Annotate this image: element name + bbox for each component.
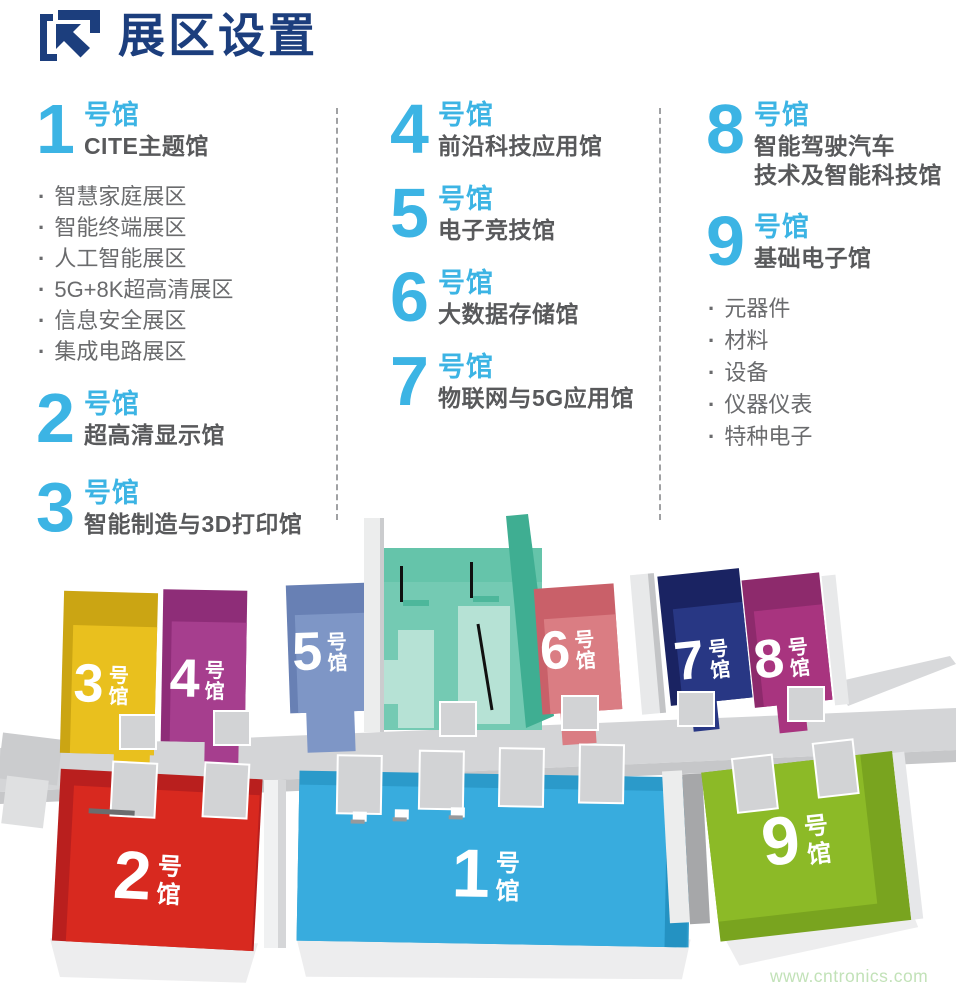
hall-name: 电子竞技馆 [438, 216, 556, 245]
floor-map-svg: 3 号 馆 4 号 馆 5 号 馆 [0, 512, 956, 994]
vestibule [788, 687, 824, 721]
partition-shelf [473, 596, 499, 602]
hall-entry-8: 8 号馆 智能驾驶汽车 技术及智能科技馆 [706, 102, 951, 190]
hall-entry-7: 7 号馆 物联网与5G应用馆 [390, 354, 655, 413]
list-item: 元器件 [708, 293, 951, 325]
vestibule [203, 762, 250, 818]
vestibule [813, 739, 859, 797]
vestibule [110, 762, 157, 818]
hall-suffix: 号馆 [438, 270, 579, 297]
vestibule [678, 692, 714, 726]
hall-number: 8 [706, 102, 743, 157]
hall-entry-1: 1 号馆 CITE主题馆 [36, 102, 331, 161]
list-item: 智能终端展区 [38, 212, 331, 243]
hall-number: 5 [390, 186, 427, 241]
map-hall-1: 1 号 馆 [296, 740, 694, 984]
divider-wall [264, 780, 286, 948]
partition-mark [470, 562, 473, 598]
vestibule [732, 755, 778, 813]
hall-number: 4 [390, 102, 427, 157]
hall-suffix: 号馆 [438, 102, 603, 129]
map-hall-5: 5 号 馆 [286, 583, 374, 754]
hall-suffix: 号馆 [84, 480, 302, 507]
hall-entry-6: 6 号馆 大数据存储馆 [390, 270, 655, 329]
map-hall-2: 2 号 馆 [48, 755, 267, 988]
vestibule [562, 696, 598, 730]
hall-name: 前沿科技应用馆 [438, 132, 603, 161]
column-3: 8 号馆 智能驾驶汽车 技术及智能科技馆 9 号馆 基础电子馆 元器件 材料 设… [706, 102, 951, 453]
list-item: 集成电路展区 [38, 336, 331, 367]
watermark: www.cntronics.com [770, 966, 928, 987]
hall-suffix: 号馆 [84, 102, 209, 129]
central-hall [364, 514, 554, 732]
hall-number: 1 [36, 102, 73, 157]
list-item: 材料 [708, 325, 951, 357]
list-item: 信息安全展区 [38, 305, 331, 336]
hall-floor [673, 602, 753, 705]
pillar-shadow [393, 817, 407, 821]
hall-suffix: 号馆 [438, 186, 556, 213]
hall-suffix: 号馆 [754, 102, 942, 129]
hall-number: 2 [36, 391, 73, 446]
map-hall-9: 9 号 馆 [699, 734, 926, 968]
list-item: 智慧家庭展区 [38, 181, 331, 212]
pillar-shadow [449, 815, 463, 819]
hall-floor [295, 613, 372, 714]
page-title: 展区设置 [118, 10, 318, 62]
floor-map: 3 号 馆 4 号 馆 5 号 馆 [0, 512, 956, 994]
map-hall-3: 3 号 馆 [59, 591, 158, 781]
hall-suffix: 号馆 [438, 354, 634, 381]
header: 展区设置 [36, 8, 318, 66]
column-divider-2 [659, 108, 661, 520]
hall-entrance-tab [306, 709, 355, 753]
column-1: 1 号馆 CITE主题馆 智慧家庭展区 智能终端展区 人工智能展区 5G+8K超… [36, 102, 331, 539]
hall-name-line2: 技术及智能科技馆 [754, 161, 942, 190]
vestibule [214, 711, 250, 745]
hall-suffix: 号馆 [754, 214, 872, 241]
list-item: 人工智能展区 [38, 243, 331, 274]
central-hall-inner-room [398, 630, 434, 728]
hall-9-zones-list: 元器件 材料 设备 仪器仪表 特种电子 [708, 293, 951, 453]
vestibule [120, 715, 156, 749]
hall-entry-9: 9 号馆 基础电子馆 [706, 214, 951, 273]
vestibule [579, 744, 624, 803]
hall-name: 大数据存储馆 [438, 300, 579, 329]
hall-number: 6 [390, 270, 427, 325]
list-item: 仪器仪表 [708, 389, 951, 421]
hall-number: 7 [390, 354, 427, 409]
hall-name: 基础电子馆 [754, 244, 872, 273]
list-item: 设备 [708, 357, 951, 389]
partition-mark [400, 566, 403, 602]
central-hall-left-wall [364, 518, 382, 732]
hall-entry-4: 4 号馆 前沿科技应用馆 [390, 102, 655, 161]
column-2: 4 号馆 前沿科技应用馆 5 号馆 电子竞技馆 6 号馆 大数据存储馆 7 号馆 [390, 102, 655, 438]
hall-name: CITE主题馆 [84, 132, 209, 161]
hall-name: 超高清显示馆 [84, 421, 225, 450]
hall-number: 9 [706, 214, 743, 269]
hall-entry-5: 5 号馆 电子竞技馆 [390, 186, 655, 245]
vestibule [499, 748, 544, 807]
central-hall-inner-room [384, 660, 398, 704]
hall-name: 物联网与5G应用馆 [438, 384, 634, 413]
wall-shade [278, 780, 286, 948]
list-item: 特种电子 [708, 421, 951, 453]
corridor-end-cap [1, 776, 49, 829]
vestibule [440, 702, 476, 736]
vestibule [419, 751, 464, 810]
list-item: 5G+8K超高清展区 [38, 274, 331, 305]
partition-shelf [403, 600, 429, 606]
central-hall-wall-edge [380, 518, 384, 732]
arrow-up-left-bracket-icon [36, 8, 102, 66]
hall-1-zones-list: 智慧家庭展区 智能终端展区 人工智能展区 5G+8K超高清展区 信息安全展区 集… [38, 181, 331, 367]
pillar-shadow [351, 819, 365, 823]
vestibule [337, 755, 382, 814]
hall-entry-2: 2 号馆 超高清显示馆 [36, 391, 331, 450]
exhibition-layout-page: 展区设置 1 号馆 CITE主题馆 智慧家庭展区 智能终端展区 人工智能展区 5… [0, 0, 956, 997]
divider-wall [662, 769, 710, 925]
wall-face [264, 780, 278, 948]
corridor-wedge [836, 656, 956, 706]
hall-name-line1: 智能驾驶汽车 [754, 132, 942, 161]
hall-suffix: 号馆 [84, 391, 225, 418]
column-divider-1 [336, 108, 338, 520]
